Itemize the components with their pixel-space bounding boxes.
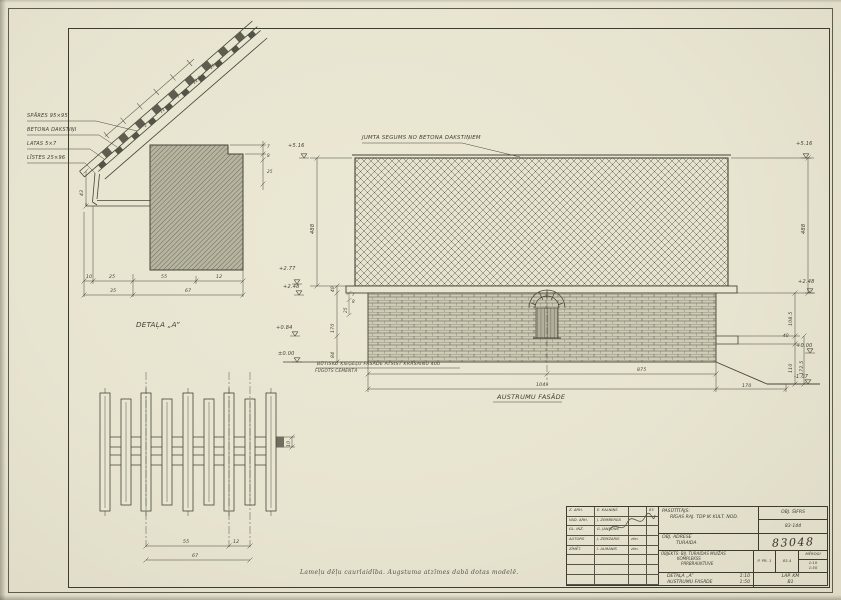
callout-boards: LĪSTES 25×96 (27, 156, 65, 162)
sheet-number-cell: LAP. KM B1 (754, 573, 827, 587)
scales-cell: MĒROGI 1:10 1:50 (799, 551, 827, 573)
dim-wall-upper: 170 (331, 323, 336, 333)
scales-label: MĒROGI (799, 551, 827, 560)
callout-rafters: SPĀRES 95×95 (27, 114, 68, 120)
dim-wall-length: 875 (637, 368, 647, 373)
dim: 25 (109, 275, 115, 280)
dim: 35 (110, 289, 116, 294)
paper-edge-shadow-bottom (0, 595, 841, 600)
dim-right-upper: 108.5 (789, 312, 794, 326)
fascia-board (346, 286, 737, 293)
elevation-title: AUSTRUMU FASĀDE (497, 394, 565, 401)
title-block: Z. ARH.E. KALNIŅŠ83 VAD. ARH.J. ZEMBERGS… (566, 506, 828, 586)
object-cell: OBJEKTS: BIJ. TURAIDAS MUIŽAS KOMPLEKSS … (659, 551, 754, 573)
gutter (86, 173, 150, 206)
wall-section-block (150, 145, 243, 270)
cipher-label: OBJ. ŠIFRS (759, 507, 827, 520)
signature-scribble (607, 509, 657, 539)
ledge (716, 336, 738, 344)
dim-ledge: 40 (783, 334, 789, 339)
code-cell: 83-4 (776, 551, 799, 573)
elevation-mark: +5.16 (288, 144, 305, 150)
dim: 12 (216, 275, 222, 280)
elevation-mark: +2.48 (798, 280, 815, 286)
dim-cluster: 8 (352, 300, 355, 305)
sig-role: AUTORS (567, 536, 595, 546)
fence-detail-drawing (100, 372, 295, 563)
project-number: 83048 (772, 536, 815, 548)
sig-mark: zīm. (629, 546, 647, 556)
sig-role: GL. INŽ. (567, 526, 595, 536)
dim-cluster: 25 (344, 307, 349, 313)
detail-a-caption: DETAĻA „A” (136, 321, 180, 329)
callout-tiles: BETONA DAKSTIŅI (27, 128, 77, 134)
elevation-mark: ±0.00 (278, 352, 295, 358)
dim-rail: 10 (287, 441, 292, 447)
dim: 67 (185, 289, 191, 294)
dim-fascia: 40 (331, 286, 336, 292)
dim: 10 (86, 275, 92, 280)
elevation-mark: +5.16 (796, 142, 813, 148)
address-value: TURAIDA (662, 541, 697, 546)
dim-fence-total: 67 (192, 554, 198, 559)
paper-edge-shadow-left (0, 0, 6, 600)
dim: 55 (161, 275, 167, 280)
stage-cell: P. PR. 1 (754, 551, 776, 573)
title-block-main: PASŪTĪTĀJS: RĪGAS RAJ. TDP IK KULT. NOD.… (659, 507, 827, 585)
elevation-mark: +0.84 (276, 326, 293, 332)
notch-dim: 8 (267, 154, 270, 159)
dim-fence-side: 12 (233, 540, 239, 545)
elevation-mark: +2.48 (283, 285, 300, 291)
scale-value: 1:50 (799, 566, 827, 571)
client-label: PASŪTĪTĀJS: (662, 509, 690, 514)
elevation-mark: -1.07 (794, 375, 808, 381)
client-value: RĪGAS RAJ. TDP IK KULT. NOD. (662, 515, 738, 520)
benchmark-icons-left (290, 154, 309, 362)
sheet-number: B1 (787, 580, 793, 585)
facade-note-2: FŪGOTS CEMENTĀ (315, 369, 357, 374)
elevation-mark: +0.00 (796, 344, 813, 350)
cipher-cell: OBJ. ŠIFRS 83-144 (759, 507, 827, 534)
address-cell: OBJ. ADRESE TURAIDA (659, 534, 759, 551)
sig-name: I. ALMANIS (595, 546, 629, 556)
drawing-sheet: SPĀRES 95×95 BETONA DAKSTIŅI LATAS 5×7 L… (0, 0, 841, 600)
sig-role: Z. ARH. (567, 507, 595, 517)
dim-right-lower: 110 (789, 363, 794, 373)
sheet-label: LAP. KM (782, 574, 800, 579)
object-line: PĀRBRAUKTUVE (661, 561, 713, 566)
signature-table: Z. ARH.E. KALNIŅŠ83 VAD. ARH.J. ZEMBERGS… (567, 507, 659, 585)
dim-roof-height: 488 (311, 224, 317, 234)
dim-cluster: 7 (352, 293, 355, 298)
cipher-value: 83-144 (759, 520, 827, 533)
dim-right-total: 172.5 (800, 361, 805, 375)
dim-roof-height: 488 (802, 224, 808, 234)
paper-edge-shadow-top (0, 0, 841, 3)
sig-role: ZĪMĒT. (567, 546, 595, 556)
address-label: OBJ. ADRESE (662, 535, 692, 540)
roof (355, 158, 728, 286)
client-cell: PASŪTĪTĀJS: RĪGAS RAJ. TDP IK KULT. NOD. (659, 507, 759, 534)
dim-wall-lower: 84 (331, 352, 336, 358)
roof-material-label: JUMTA SEGUMS NO BETONA DAKSTIŅIEM (362, 136, 481, 142)
notch-dim: 25 (267, 170, 273, 175)
sig-role: VAD. ARH. (567, 517, 595, 527)
handwritten-footnote: Lameļu dēļu caurlaidība. Augstuma atzīme… (300, 570, 519, 577)
gutter-dim: 43 (80, 190, 85, 196)
dim-total-length: 1049 (536, 383, 549, 388)
item-label: AUSTRUMU FASĀDE (667, 580, 713, 586)
facade-note: BŪTISKU ĶIEĢEĻU FASĀDE ATSIST KRĀSAINU 4… (317, 362, 440, 367)
notch-dim: 7 (267, 145, 270, 150)
dim-fence-inner: 55 (183, 540, 189, 545)
dim-ramp: 170 (742, 384, 752, 389)
elevation-mark: +2.77 (279, 267, 296, 273)
item-scale: 1:50 (740, 580, 750, 586)
project-number-cell: 83048 (759, 534, 827, 551)
callout-battens: LATAS 5×7 (27, 142, 56, 148)
sheet-items-cell: DETAĻA „A” 1:10 AUSTRUMU FASĀDE 1:50 (659, 573, 754, 587)
